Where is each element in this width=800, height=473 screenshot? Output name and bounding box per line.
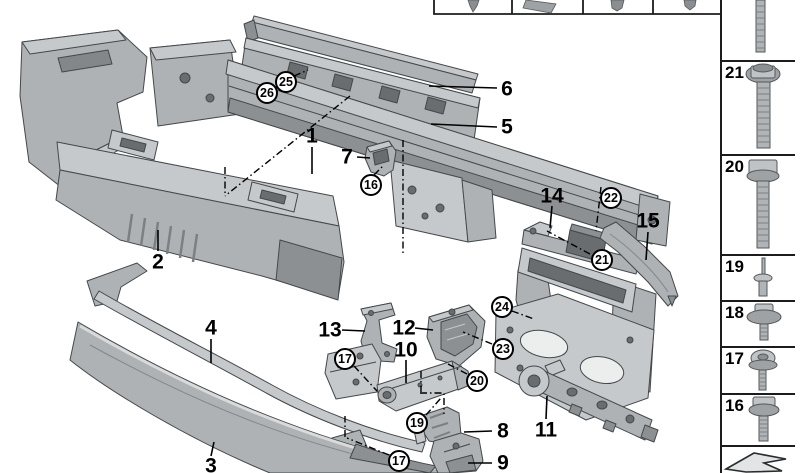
callout-10[interactable]: 10 xyxy=(394,340,417,361)
direction-arrow-icon xyxy=(722,447,792,473)
callout-circled-21[interactable]: 21 xyxy=(591,249,613,271)
sidebar-item-21[interactable]: 21 xyxy=(722,62,795,156)
parts-diagram-stage: 1234567891011121314151617171920212223242… xyxy=(0,0,800,473)
callout-circled-17[interactable]: 17 xyxy=(388,450,410,472)
sidebar-item-19[interactable]: 19 xyxy=(722,256,795,302)
hex-washer-screw-icon xyxy=(723,302,793,346)
part-12-bracket xyxy=(427,305,485,366)
callout-circled-20[interactable]: 20 xyxy=(466,370,488,392)
part-10-crash-tube xyxy=(377,361,470,411)
blind-rivet-icon xyxy=(723,256,793,300)
callout-11[interactable]: 11 xyxy=(535,420,557,441)
callout-circled-26[interactable]: 26 xyxy=(256,82,278,104)
callout-3[interactable]: 3 xyxy=(205,456,217,473)
callout-1[interactable]: 1 xyxy=(306,126,318,147)
expanding-rivet-icon xyxy=(611,0,624,11)
sidebar-item-16[interactable]: 16 xyxy=(722,395,795,447)
callout-7[interactable]: 7 xyxy=(341,147,353,168)
sidebar-item-20[interactable]: 20 xyxy=(722,156,795,256)
pan-head-washer-screw-icon xyxy=(723,348,793,393)
parts-illustration xyxy=(0,0,800,473)
callout-15[interactable]: 15 xyxy=(636,211,659,232)
plastic-stud-icon xyxy=(684,0,696,10)
callout-13[interactable]: 13 xyxy=(318,320,341,341)
hex-flange-screw-icon xyxy=(723,395,793,445)
callout-14[interactable]: 14 xyxy=(540,186,563,207)
sidebar-item-18[interactable]: 18 xyxy=(722,302,795,348)
callout-circled-23[interactable]: 23 xyxy=(492,338,514,360)
threaded-rod-icon xyxy=(723,0,793,60)
sidebar-item-rod[interactable] xyxy=(722,0,795,62)
fastener-sidebar: 21 20 19 18 xyxy=(720,0,795,473)
hex-bolt-icon xyxy=(723,156,793,254)
callout-4[interactable]: 4 xyxy=(205,318,217,339)
callout-9[interactable]: 9 xyxy=(497,453,509,473)
sidebar-item-17[interactable]: 17 xyxy=(722,348,795,395)
callout-circled-25[interactable]: 25 xyxy=(275,71,297,93)
callout-circled-22[interactable]: 22 xyxy=(600,187,622,209)
callout-circled-17[interactable]: 17 xyxy=(334,348,356,370)
callout-circled-24[interactable]: 24 xyxy=(491,296,513,318)
callout-8[interactable]: 8 xyxy=(497,421,509,442)
sidebar-direction-box xyxy=(722,447,795,473)
callout-circled-16[interactable]: 16 xyxy=(360,174,382,196)
callout-2[interactable]: 2 xyxy=(152,252,164,273)
callout-6[interactable]: 6 xyxy=(501,79,513,100)
hex-flange-bolt-icon xyxy=(723,62,793,154)
callout-5[interactable]: 5 xyxy=(501,117,513,138)
callout-circled-19[interactable]: 19 xyxy=(406,412,428,434)
blind-rivet-icon xyxy=(468,0,479,12)
clip-nut-icon xyxy=(523,0,556,13)
callout-12[interactable]: 12 xyxy=(392,318,415,339)
